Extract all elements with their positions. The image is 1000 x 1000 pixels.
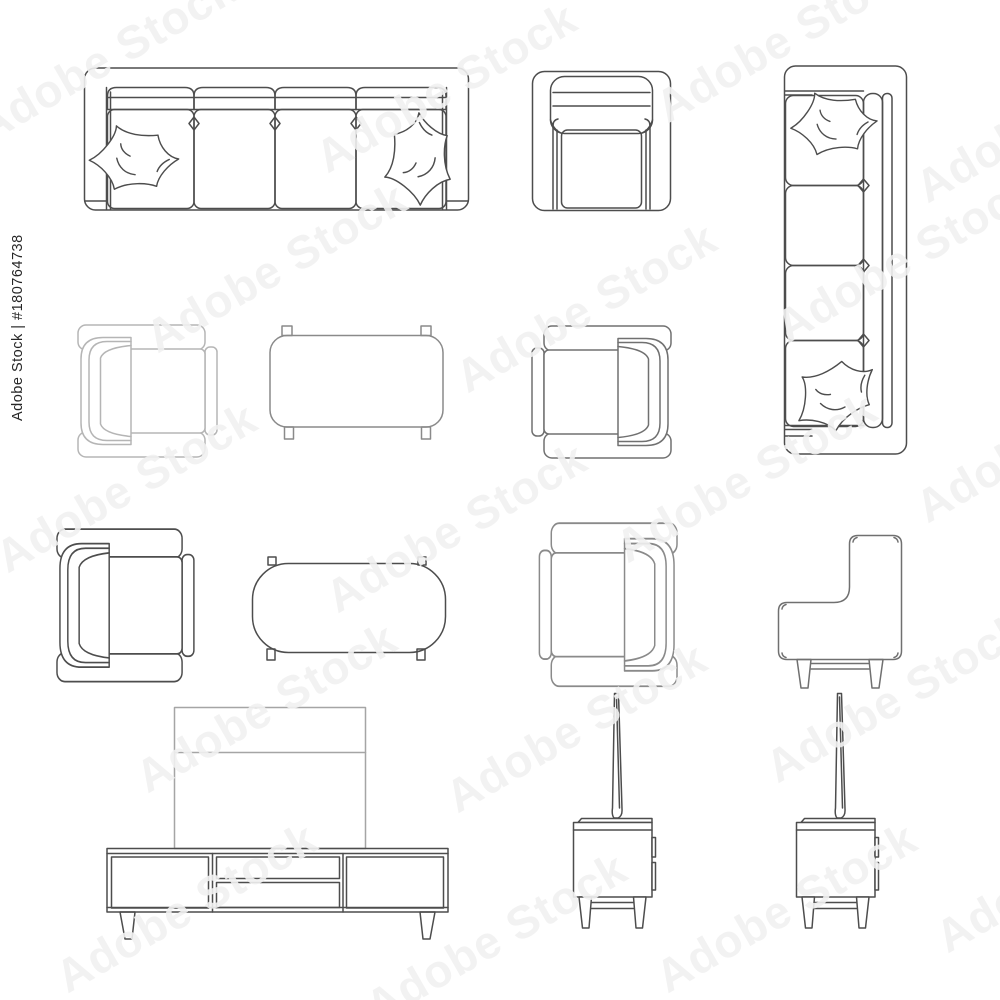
- armchair-right-top-view-2-icon: [538, 522, 678, 688]
- armchair-left-top-view-light-icon: [77, 324, 218, 458]
- tv-stand-side-view-icon: [568, 691, 658, 931]
- pillow-icon: [84, 110, 183, 209]
- coffee-table-rounded-top-view-icon: [250, 553, 450, 663]
- watermark-tile: Adobe Stock: [906, 21, 1000, 214]
- pillow-icon: [369, 109, 471, 211]
- tv-panel-icon: [175, 708, 366, 849]
- watermark-tile: Adobe Stock: [646, 811, 926, 1000]
- coffee-table-rect-top-view-icon: [268, 325, 445, 440]
- stock-illustration-furniture-set: Adobe Stock Adobe Stock Adobe Stock Adob…: [0, 0, 1000, 1000]
- armchair-side-view-icon: [775, 533, 908, 693]
- stock-id-caption: Adobe Stock | #180764738: [10, 234, 26, 421]
- armchair-left-top-view-icon: [56, 528, 195, 683]
- tv-stand-side-view-2-icon: [791, 691, 881, 931]
- tv-cabinet-icon: [107, 849, 448, 940]
- long-sofa-vertical-top-view-icon: [783, 64, 908, 456]
- tv-stand-front-view-icon: [105, 703, 450, 943]
- watermark-tile: Adobe Stock: [906, 341, 1000, 534]
- armchair-right-top-view-icon: [529, 325, 672, 460]
- armchair-top-view-icon: [531, 70, 672, 212]
- watermark-tile: Adobe Stock: [926, 771, 1000, 964]
- four-seat-sofa-top-view-icon: [83, 66, 470, 212]
